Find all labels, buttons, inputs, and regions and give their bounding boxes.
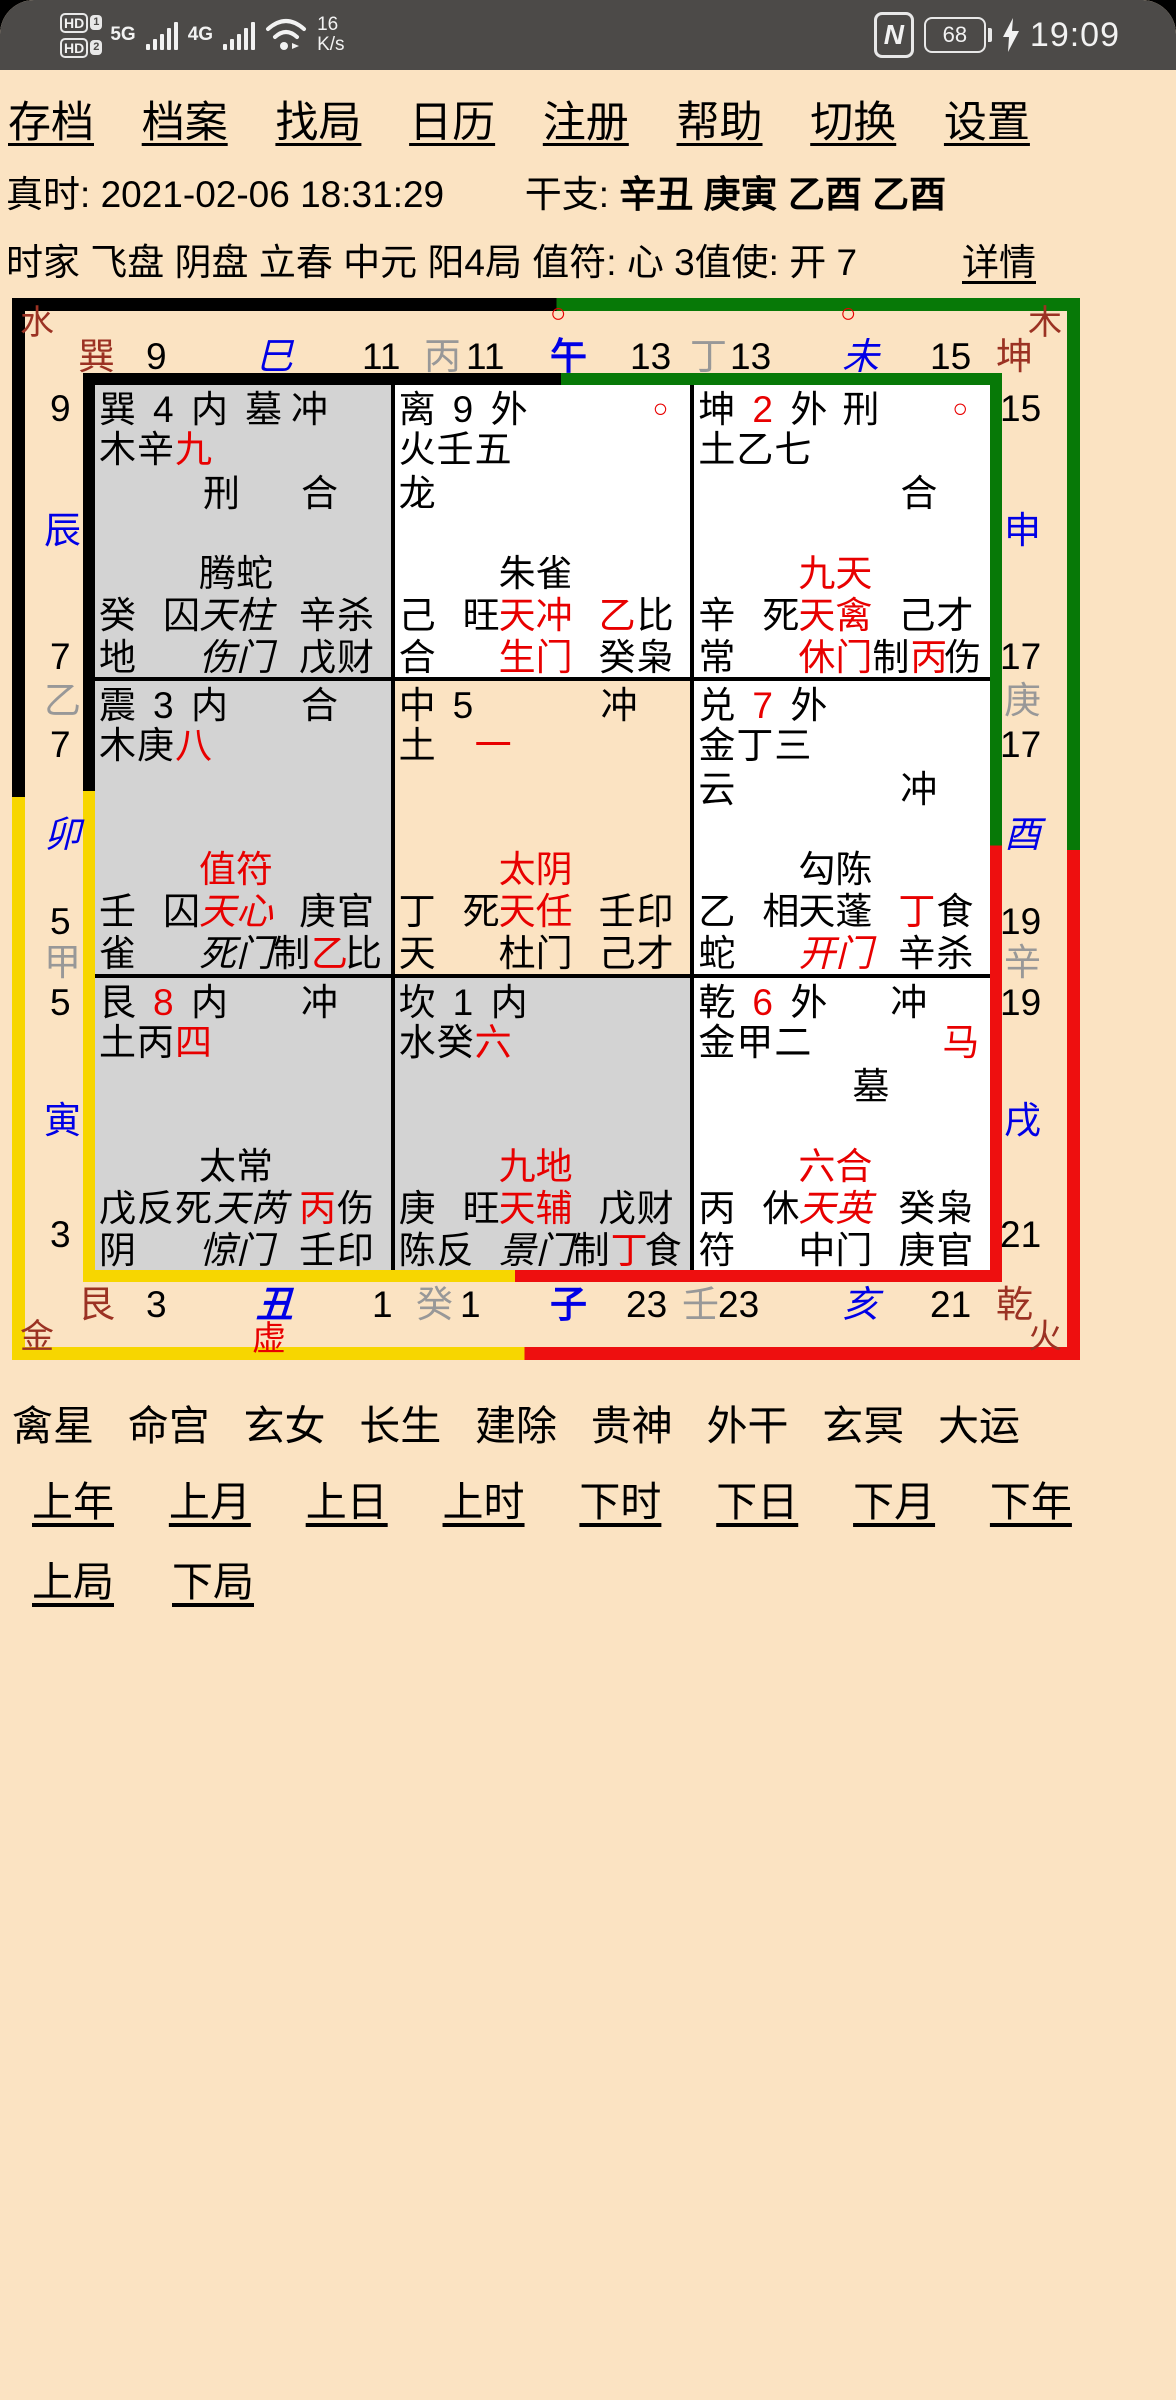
chart-text: 内 — [491, 984, 528, 1021]
chart-text: 天英 — [798, 1190, 872, 1227]
chart-text: 四 — [175, 1024, 212, 1061]
chart-text: 丁 — [611, 1232, 648, 1269]
chart-text: 戊 — [299, 639, 336, 676]
chart-text: 蛇 — [698, 935, 735, 972]
grid-left-border — [83, 373, 95, 1282]
chart-text: 杜门 — [499, 935, 573, 972]
chart-text: 丁 — [399, 893, 436, 930]
chart-text: 中门 — [798, 1232, 872, 1269]
bottom-row: 21 — [930, 1286, 971, 1323]
right-label: 17 — [1000, 726, 1041, 763]
chart-text: 癸 — [599, 639, 636, 676]
chart-text: 天冲 — [499, 597, 573, 634]
chart-text: 印 — [337, 1232, 374, 1269]
chart-text: ○ — [653, 395, 669, 421]
chart-text: 天 — [399, 935, 436, 972]
chart-text: 震 — [99, 687, 136, 724]
frame-left-border — [12, 298, 25, 1360]
left-label: 寅 — [44, 1102, 81, 1139]
chart-text: 囚 — [163, 597, 200, 634]
chart-area: 巽4内墓冲木辛九刑合腾蛇癸囚天柱辛杀地伤门戊财离9外○火壬五龙朱雀己旺天冲乙比合… — [0, 0, 1176, 1400]
chart-text: 乙 — [599, 597, 636, 634]
chart-text: 外 — [790, 687, 827, 724]
left-label: 甲 — [44, 944, 81, 981]
chart-text: 九 — [175, 431, 212, 468]
chart-text: 勾陈 — [798, 851, 872, 888]
chart-text: 伤门 — [199, 639, 273, 676]
chart-text: 2 — [752, 391, 773, 428]
grid-right-border — [990, 373, 1002, 1282]
app-screen: HD1 HD2 5G 4G 16K/s N 68 19:09 存档档案找局日历注… — [0, 0, 1176, 2400]
top-row: 9 — [146, 338, 167, 375]
chart-text: 官 — [337, 893, 374, 930]
chart-text: 惊门 — [199, 1232, 273, 1269]
chart-text: 死 — [762, 597, 799, 634]
chart-text: 4 — [153, 391, 174, 428]
chart-text: 丙 — [698, 1190, 735, 1227]
palace-xun-4[interactable]: 巽4内墓冲木辛九刑合腾蛇癸囚天柱辛杀地伤门戊财 — [95, 385, 391, 677]
bottom-row: 23 — [626, 1286, 667, 1323]
chart-text: 伤 — [944, 639, 981, 676]
right-label: 19 — [1000, 903, 1041, 940]
palace-qian-6[interactable]: 乾6外冲金甲二马墓六合丙休天英癸枭符中门庚官 — [694, 978, 990, 1270]
chart-text: 五 — [475, 431, 512, 468]
chart-text: 庚 — [299, 893, 336, 930]
chart-text: 戊 — [99, 1190, 136, 1227]
chart-text: 金 — [698, 1024, 735, 1061]
chart-text: 比 — [637, 597, 674, 634]
chart-text: 丙 — [137, 1024, 174, 1061]
chart-text: 冲 — [890, 984, 927, 1021]
ju-nav-row: 上局下局 — [32, 1548, 254, 1608]
left-label: 7 — [50, 726, 71, 763]
chart-text: 刑 — [842, 391, 879, 428]
right-label: 19 — [1000, 984, 1041, 1021]
chart-text: 二 — [774, 1024, 811, 1061]
bottom-row: 1 — [460, 1286, 481, 1323]
chart-text: 癸 — [99, 597, 136, 634]
chart-text: 9 — [453, 391, 474, 428]
bottom-row: 23 — [718, 1286, 759, 1323]
chart-text: 杀 — [936, 935, 973, 972]
chart-text: 壬 — [299, 1232, 336, 1269]
chart-text: 龙 — [399, 475, 436, 512]
chart-text: 墓 — [852, 1068, 889, 1105]
chart-text: 刑 — [203, 475, 240, 512]
ju-link-下局[interactable]: 下局 — [172, 1548, 254, 1608]
chart-text: 外 — [790, 391, 827, 428]
chart-text: 丙 — [910, 639, 947, 676]
left-label: 辰 — [44, 512, 81, 549]
chart-text: 5 — [453, 687, 474, 724]
right-label: 17 — [1000, 638, 1041, 675]
top-row: 坤 — [996, 338, 1033, 375]
nav-link-上年[interactable]: 上年 — [32, 1468, 114, 1528]
right-label: 21 — [1000, 1216, 1041, 1253]
chart-text: 壬 — [437, 431, 474, 468]
palace-kan-1[interactable]: 坎1内水癸六九地庚旺天辅戊财陈反景门制丁食 — [395, 978, 691, 1270]
left-label: 卯 — [44, 816, 81, 853]
bottom-row: 子 — [550, 1286, 587, 1323]
chart-text: 食 — [936, 893, 973, 930]
palace-dui-7[interactable]: 兑7外金丁三云冲勾陈乙相天蓬丁食蛇开门辛杀 — [694, 681, 990, 973]
chart-text: 兑 — [698, 687, 735, 724]
corner-metal: 金 — [20, 1320, 54, 1354]
chart-text: 九地 — [499, 1148, 573, 1185]
time-nav-row: 上年上月上日上时下时下日下月下年 — [32, 1468, 1072, 1528]
nav-link-上月[interactable]: 上月 — [169, 1468, 251, 1528]
chart-text: 制 — [573, 1232, 610, 1269]
chart-text: 丁 — [736, 727, 773, 764]
chart-text: 离 — [399, 391, 436, 428]
chart-text: 阴 — [99, 1232, 136, 1269]
corner-wood: 木 — [1028, 306, 1062, 340]
chart-text: 六合 — [798, 1148, 872, 1185]
chart-text: 庚 — [399, 1190, 436, 1227]
chart-text: 己 — [898, 597, 935, 634]
palace-grid-wrap: 巽4内墓冲木辛九刑合腾蛇癸囚天柱辛杀地伤门戊财离9外○火壬五龙朱雀己旺天冲乙比合… — [83, 373, 1002, 1282]
chart-text: 丁 — [898, 893, 935, 930]
palace-gen-8[interactable]: 艮8内冲土丙四太常戊反死天芮丙伤阴惊门壬印 — [95, 978, 391, 1270]
frame-bottom-border — [12, 1347, 1080, 1360]
kongwang-circle: ○ — [550, 300, 566, 327]
chart-text: 九天 — [798, 555, 872, 592]
chart-text: 内 — [191, 687, 228, 724]
top-row: 巳 — [256, 338, 293, 375]
chart-text: 金 — [698, 727, 735, 764]
top-row: 丁 — [690, 338, 727, 375]
chart-text: 水 — [399, 1024, 436, 1061]
nav-link-下时[interactable]: 下时 — [579, 1468, 661, 1528]
chart-text: 朱雀 — [499, 555, 573, 592]
chart-text: 天芮 — [213, 1190, 287, 1227]
chart-text: 庚 — [137, 727, 174, 764]
feature-link-外干[interactable]: 外干 — [707, 1392, 789, 1452]
feature-link-命宫[interactable]: 命宫 — [128, 1392, 210, 1452]
chart-text: 辛 — [137, 431, 174, 468]
chart-text: 生门 — [499, 639, 573, 676]
chart-text: 常 — [698, 639, 735, 676]
chart-text: 己 — [399, 597, 436, 634]
kongwang-circle: ○ — [840, 300, 856, 327]
chart-text: 土 — [698, 431, 735, 468]
grid-bottom-border — [83, 1270, 1002, 1282]
feature-link-贵神[interactable]: 贵神 — [591, 1392, 673, 1452]
top-row: 11 — [466, 338, 504, 375]
feature-link-禽星[interactable]: 禽星 — [12, 1392, 94, 1452]
feature-links-row: 禽星命宫玄女长生建除贵神外干玄冥大运 — [12, 1392, 1020, 1452]
chart-text: 坎 — [399, 984, 436, 1021]
chart-text: 合 — [301, 475, 338, 512]
chart-text: 冲 — [900, 771, 937, 808]
chart-text: 冲 — [291, 391, 328, 428]
chart-text: 天任 — [499, 893, 573, 930]
chart-text: 土 — [99, 1024, 136, 1061]
right-label: 辛 — [1004, 944, 1041, 981]
chart-text: 合 — [900, 475, 937, 512]
bottom-row: 癸 — [416, 1286, 453, 1323]
chart-text: 伤 — [337, 1190, 374, 1227]
chart-text: ○ — [952, 395, 968, 421]
bottom-row: 乾 — [996, 1286, 1033, 1323]
chart-text: 腾蛇 — [199, 555, 273, 592]
chart-text: 才 — [637, 935, 674, 972]
feature-link-玄冥[interactable]: 玄冥 — [822, 1392, 904, 1452]
chart-text: 1 — [453, 984, 474, 1021]
chart-text: 冲 — [301, 984, 338, 1021]
ju-link-上局[interactable]: 上局 — [32, 1548, 114, 1608]
chart-text: 乙 — [736, 431, 773, 468]
left-label: 5 — [50, 903, 71, 940]
chart-text: 地 — [99, 639, 136, 676]
right-label: 申 — [1004, 512, 1041, 549]
chart-text: 太常 — [199, 1148, 273, 1185]
chart-text: 墓 — [245, 391, 282, 428]
chart-text: 死门 — [199, 935, 273, 972]
chart-text: 天心 — [199, 893, 273, 930]
bottom-row: 亥 — [842, 1286, 879, 1323]
chart-text: 反 — [137, 1190, 174, 1227]
left-label: 7 — [50, 638, 71, 675]
corner-water: 水 — [20, 306, 54, 340]
chart-text: 癸 — [437, 1024, 474, 1061]
chart-text: 巽 — [99, 391, 136, 428]
nav-link-下月[interactable]: 下月 — [853, 1468, 935, 1528]
chart-text: 制 — [273, 935, 310, 972]
chart-text: 景门 — [499, 1232, 573, 1269]
chart-text: 丙 — [299, 1190, 336, 1227]
chart-text: 冲 — [601, 687, 638, 724]
chart-text: 三 — [774, 727, 811, 764]
left-label: 9 — [50, 390, 71, 427]
bottom-row: 1 — [372, 1286, 393, 1323]
chart-text: 合 — [301, 687, 338, 724]
chart-text: 戊 — [599, 1190, 636, 1227]
left-label: 5 — [50, 984, 71, 1021]
chart-text: 陈 — [399, 1232, 436, 1269]
bottom-row: 丑 — [256, 1286, 293, 1323]
chart-text: 己 — [599, 935, 636, 972]
top-row: 15 — [930, 338, 971, 375]
chart-text: 雀 — [99, 935, 136, 972]
feature-link-玄女[interactable]: 玄女 — [244, 1392, 326, 1452]
chart-text: 反 — [437, 1232, 474, 1269]
chart-text: 一 — [475, 727, 512, 764]
chart-text: 食 — [645, 1232, 682, 1269]
chart-text: 合 — [399, 639, 436, 676]
chart-text: 才 — [936, 597, 973, 634]
right-label: 15 — [1000, 390, 1041, 427]
chart-text: 辛 — [698, 597, 735, 634]
chart-text: 坤 — [698, 391, 735, 428]
chart-text: 6 — [752, 984, 773, 1021]
nav-link-下年[interactable]: 下年 — [990, 1468, 1072, 1528]
chart-text: 死 — [175, 1190, 212, 1227]
chart-text: 内 — [191, 391, 228, 428]
chart-text: 云 — [698, 771, 735, 808]
right-label: 酉 — [1004, 816, 1041, 853]
chart-text: 8 — [153, 984, 174, 1021]
chart-text: 印 — [637, 893, 674, 930]
top-row: 巽 — [78, 338, 115, 375]
nav-link-上日[interactable]: 上日 — [306, 1468, 388, 1528]
chart-text: 木 — [99, 431, 136, 468]
chart-text: 外 — [790, 984, 827, 1021]
left-label: 3 — [50, 1216, 71, 1253]
chart-text: 枭 — [936, 1190, 973, 1227]
chart-text: 财 — [337, 639, 374, 676]
chart-text: 中 — [399, 687, 436, 724]
chart-text: 六 — [475, 1024, 512, 1061]
chart-text: 7 — [752, 687, 773, 724]
chart-text: 财 — [637, 1190, 674, 1227]
chart-text: 木 — [99, 727, 136, 764]
chart-text: 辛 — [299, 597, 336, 634]
top-row: 13 — [730, 338, 771, 375]
chart-text: 乙 — [311, 935, 348, 972]
chart-text: 八 — [175, 727, 212, 764]
chart-text: 外 — [491, 391, 528, 428]
chart-text: 壬 — [99, 893, 136, 930]
xu-mark: 虚 — [252, 1322, 286, 1356]
feature-link-建除[interactable]: 建除 — [475, 1392, 557, 1452]
chart-text: 死 — [463, 893, 500, 930]
chart-text: 囚 — [163, 893, 200, 930]
chart-text: 休 — [762, 1190, 799, 1227]
palace-zhen-3[interactable]: 震3内合木庚八值符壬囚天心庚官雀死门制乙比 — [95, 681, 391, 973]
chart-text: 乙 — [698, 893, 735, 930]
left-label: 乙 — [44, 682, 81, 719]
frame-top-border — [12, 298, 1080, 311]
chart-text: 七 — [774, 431, 811, 468]
chart-text: 土 — [399, 727, 436, 764]
chart-text: 3 — [153, 687, 174, 724]
feature-link-长生[interactable]: 长生 — [359, 1392, 441, 1452]
chart-text: 火 — [399, 431, 436, 468]
chart-text: 壬 — [599, 893, 636, 930]
top-row: 11 — [362, 338, 400, 375]
top-row: 午 — [550, 338, 587, 375]
chart-text: 天禽 — [798, 597, 872, 634]
palace-center-5[interactable]: 中5冲土一太阴丁死天任壬印天杜门己才 — [395, 681, 691, 973]
nav-link-上时[interactable]: 上时 — [443, 1468, 525, 1528]
nav-link-下日[interactable]: 下日 — [716, 1468, 798, 1528]
chart-text: 枭 — [637, 639, 674, 676]
chart-text: 甲 — [736, 1024, 773, 1061]
chart-text: 休门 — [798, 639, 872, 676]
corner-fire: 火 — [1028, 1320, 1062, 1354]
top-row: 未 — [842, 338, 879, 375]
chart-text: 艮 — [99, 984, 136, 1021]
right-label: 戌 — [1004, 1102, 1041, 1139]
bottom-row: 3 — [146, 1286, 167, 1323]
chart-text: 内 — [191, 984, 228, 1021]
chart-text: 辛 — [898, 935, 935, 972]
palace-li-9[interactable]: 离9外○火壬五龙朱雀己旺天冲乙比合生门癸枭 — [395, 385, 691, 677]
chart-text: 开门 — [798, 935, 872, 972]
chart-text: 庚 — [898, 1232, 935, 1269]
top-row: 13 — [630, 338, 671, 375]
top-row: 丙 — [424, 338, 461, 375]
palace-grid: 巽4内墓冲木辛九刑合腾蛇癸囚天柱辛杀地伤门戊财离9外○火壬五龙朱雀己旺天冲乙比合… — [95, 385, 990, 1270]
bottom-row: 壬 — [682, 1286, 719, 1323]
chart-text: 杀 — [337, 597, 374, 634]
chart-text: 天辅 — [499, 1190, 573, 1227]
chart-text: 天蓬 — [798, 893, 872, 930]
chart-text: 癸 — [898, 1190, 935, 1227]
chart-text: 符 — [698, 1232, 735, 1269]
chart-text: 太阴 — [499, 851, 573, 888]
chart-text: 旺 — [463, 597, 500, 634]
chart-text: 乾 — [698, 984, 735, 1021]
bottom-row: 艮 — [78, 1286, 115, 1323]
chart-text: 相 — [762, 893, 799, 930]
feature-link-大运[interactable]: 大运 — [938, 1392, 1020, 1452]
chart-text: 制 — [872, 639, 909, 676]
frame-right-border — [1067, 298, 1080, 1360]
chart-text: 马 — [942, 1024, 979, 1061]
chart-text: 天柱 — [199, 597, 273, 634]
chart-text: 比 — [345, 935, 382, 972]
right-label: 庚 — [1004, 682, 1041, 719]
chart-text: 旺 — [463, 1190, 500, 1227]
chart-text: 值符 — [199, 851, 273, 888]
chart-text: 官 — [936, 1232, 973, 1269]
palace-kun-2[interactable]: 坤2外刑○土乙七合九天辛死天禽己才常休门制丙伤 — [694, 385, 990, 677]
